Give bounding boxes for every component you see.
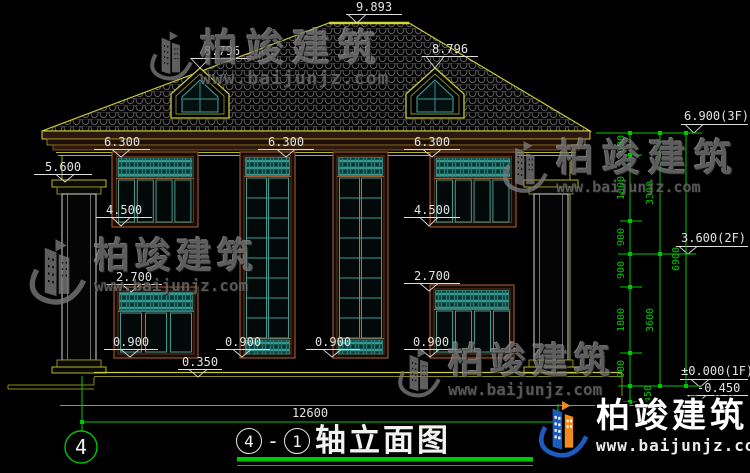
cad-canvas: 9.893 8.796 8.796 6.300 6.300 6.300 5.60… — [0, 0, 750, 473]
chain-seg-900a: 900 — [617, 228, 627, 246]
window-tall-2 — [333, 152, 388, 358]
level-3f: 6.900(3F) — [684, 110, 749, 122]
dim-sill2f-right: 4.500 — [414, 204, 450, 216]
chain-seg-900c: 900 — [617, 360, 627, 378]
dim-overall-width: 12600 — [292, 407, 328, 419]
chain-floor-3300: 3300 — [646, 181, 656, 205]
dim-eave-1: 6.300 — [104, 136, 140, 148]
title-underline — [237, 457, 533, 466]
level-1f: ±0.000(1F) — [681, 365, 750, 377]
dim-ridge: 9.893 — [356, 1, 392, 13]
title-axis-start: 4 — [236, 428, 262, 454]
window-tall-1 — [240, 152, 295, 358]
chain-seg-450: 450 — [644, 385, 654, 403]
dim-sill1f-2: 0.900 — [225, 336, 261, 348]
chain-total-6900: 6900 — [672, 247, 682, 271]
dim-sill1f-1: 0.900 — [113, 336, 149, 348]
axis-bubble-4: 4 — [75, 435, 87, 459]
dim-eave-3: 6.300 — [414, 136, 450, 148]
elevation-drawing — [0, 0, 750, 473]
ground-lines — [8, 373, 668, 406]
roof — [42, 23, 590, 131]
dim-dormer-left: 8.796 — [204, 45, 240, 57]
chain-seg-900b: 900 — [617, 261, 627, 279]
dim-plinth: 0.350 — [182, 356, 218, 368]
dim-sill1f-3: 0.900 — [315, 336, 351, 348]
drawing-title: 4 - 1 轴立面图 — [236, 424, 451, 458]
dim-dormer-right: 8.796 — [432, 43, 468, 55]
dim-eave-2: 6.300 — [268, 136, 304, 148]
dim-head1f-left: 2.700 — [116, 271, 152, 283]
chain-seg-1800a: 1800 — [617, 176, 627, 200]
dim-sill1f-4: 0.900 — [413, 336, 449, 348]
level-neg: -0.450 — [697, 382, 740, 394]
dim-eave-left: 5.600 — [45, 161, 81, 173]
title-dash: - — [267, 431, 279, 451]
title-axis-end: 1 — [284, 428, 310, 454]
chain-floor-3600: 3600 — [646, 308, 656, 332]
level-2f: 3.600(2F) — [681, 232, 746, 244]
chain-seg-1800b: 1800 — [617, 308, 627, 332]
chain-seg-600: 600 — [617, 135, 627, 153]
pilaster-left — [52, 180, 106, 373]
dim-sill2f-left: 4.500 — [106, 204, 142, 216]
dim-head1f-right: 2.700 — [414, 270, 450, 282]
title-text: 轴立面图 — [315, 424, 451, 458]
